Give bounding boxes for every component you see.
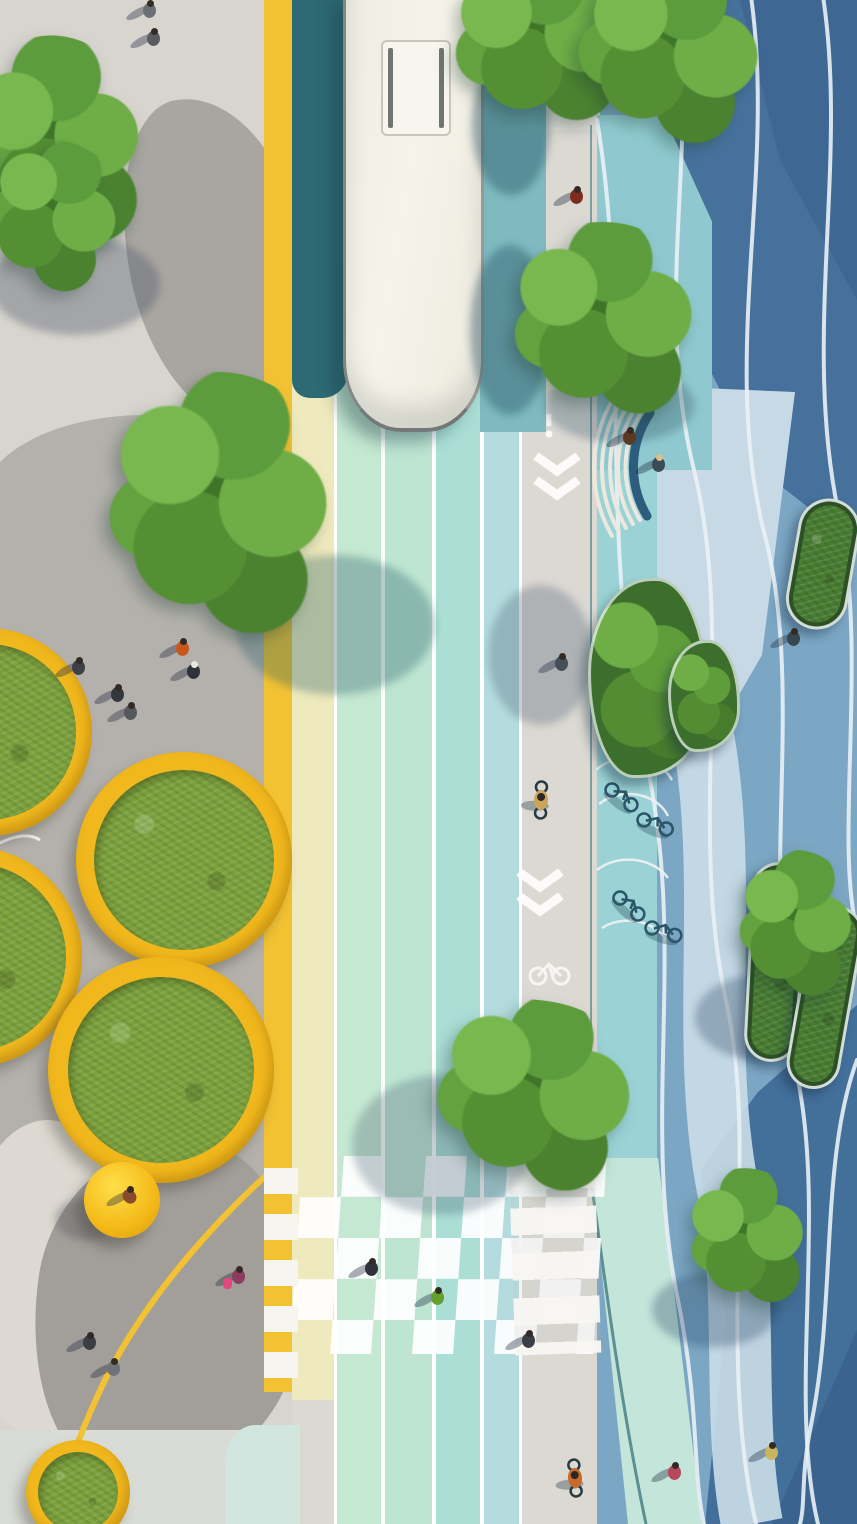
person bbox=[664, 1461, 686, 1485]
person bbox=[119, 1185, 141, 1209]
person bbox=[551, 652, 573, 676]
person-head bbox=[111, 1358, 118, 1365]
person-head bbox=[672, 1462, 679, 1469]
shrub-planter bbox=[668, 640, 740, 752]
parked-bike bbox=[634, 811, 675, 842]
aerial-street-render bbox=[0, 0, 857, 1524]
person bbox=[139, 0, 161, 23]
planter-grass bbox=[94, 770, 274, 950]
person bbox=[103, 1357, 125, 1381]
person-head bbox=[128, 702, 135, 709]
person bbox=[183, 660, 205, 684]
round-grass-planter bbox=[76, 752, 292, 968]
person-head bbox=[526, 1330, 533, 1337]
person-head bbox=[87, 1332, 94, 1339]
person-head bbox=[180, 638, 187, 645]
cyclist bbox=[520, 779, 561, 820]
person-head bbox=[559, 653, 566, 660]
person-head bbox=[656, 454, 663, 461]
person bbox=[648, 453, 670, 477]
cyclist-figure bbox=[553, 1456, 596, 1499]
person bbox=[143, 27, 165, 51]
cyclist bbox=[553, 1456, 596, 1499]
person-head bbox=[191, 661, 198, 668]
person-head bbox=[236, 1266, 243, 1273]
person bbox=[120, 701, 142, 725]
person-head bbox=[627, 427, 634, 434]
bike-shadow bbox=[644, 929, 679, 948]
person bbox=[427, 1286, 449, 1310]
bag bbox=[223, 1278, 232, 1289]
person bbox=[172, 637, 194, 661]
person-head bbox=[127, 1186, 134, 1193]
person-head bbox=[574, 186, 581, 193]
bus-roof-vent bbox=[388, 48, 393, 128]
person bbox=[619, 426, 641, 450]
person bbox=[361, 1257, 383, 1281]
person-head bbox=[435, 1287, 442, 1294]
cyclist-figure bbox=[520, 779, 561, 820]
person-head bbox=[791, 628, 798, 635]
planter-grass bbox=[38, 1452, 118, 1524]
round-grass-planter bbox=[48, 957, 274, 1183]
person bbox=[783, 627, 805, 651]
person bbox=[566, 185, 588, 209]
person bbox=[228, 1265, 250, 1289]
person bbox=[518, 1329, 540, 1353]
planter-grass bbox=[68, 977, 254, 1163]
person-head bbox=[115, 684, 122, 691]
tree-shadow bbox=[488, 585, 593, 725]
person bbox=[68, 656, 90, 680]
person-head bbox=[369, 1258, 376, 1265]
person bbox=[761, 1441, 783, 1465]
bike-rack-loop bbox=[597, 860, 668, 878]
planter-grass bbox=[0, 863, 66, 1051]
person-head bbox=[147, 0, 154, 7]
person-head bbox=[151, 28, 158, 35]
person-head bbox=[76, 657, 83, 664]
person-head bbox=[769, 1442, 776, 1449]
person bbox=[79, 1331, 101, 1355]
